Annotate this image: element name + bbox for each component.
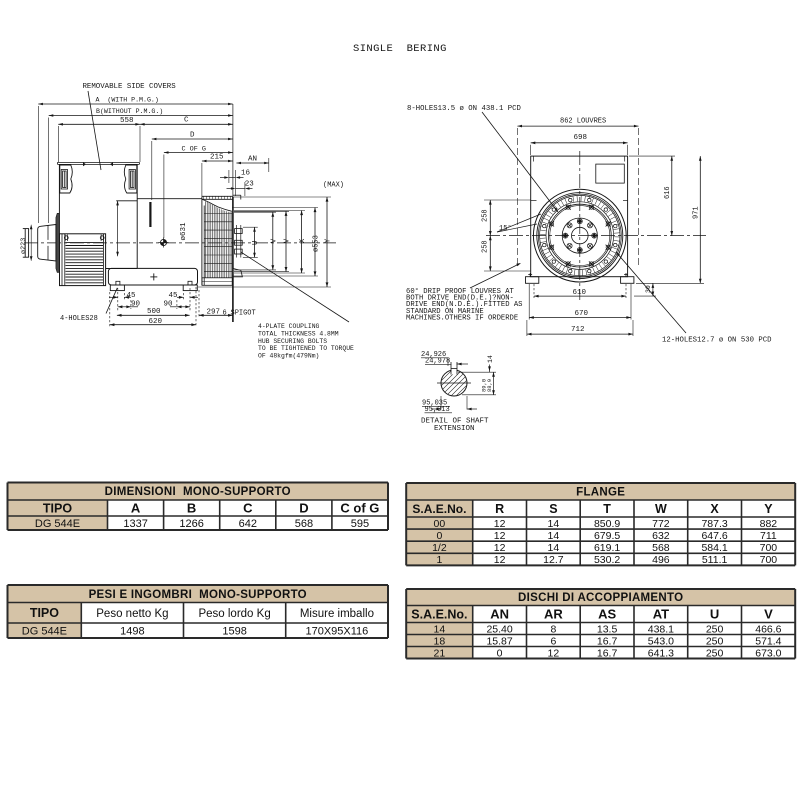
svg-text:U: U [710, 607, 719, 622]
svg-text:16.7: 16.7 [597, 647, 618, 659]
svg-text:21: 21 [434, 647, 446, 659]
svg-text:6: 6 [550, 635, 556, 647]
svg-text:AR: AR [544, 607, 563, 622]
svg-text:15.87: 15.87 [486, 635, 512, 647]
svg-text:250: 250 [706, 635, 724, 647]
svg-text:25.40: 25.40 [486, 623, 512, 635]
svg-text:438.1: 438.1 [648, 623, 674, 635]
svg-text:V: V [764, 607, 773, 622]
svg-text:12: 12 [548, 647, 560, 659]
svg-text:673.0: 673.0 [755, 647, 781, 659]
svg-text:0: 0 [497, 647, 503, 659]
svg-text:AS: AS [598, 607, 616, 622]
svg-text:543.0: 543.0 [648, 635, 674, 647]
svg-text:AN: AN [490, 607, 509, 622]
svg-text:18: 18 [434, 635, 446, 647]
svg-text:641.3: 641.3 [648, 647, 674, 659]
svg-text:14: 14 [434, 623, 446, 635]
svg-text:250: 250 [706, 623, 724, 635]
svg-text:DISCHI DI ACCOPPIAMENTO: DISCHI DI ACCOPPIAMENTO [518, 592, 683, 604]
svg-text:466.6: 466.6 [755, 623, 781, 635]
svg-text:571.4: 571.4 [755, 635, 781, 647]
svg-text:16.7: 16.7 [597, 635, 618, 647]
svg-text:13.5: 13.5 [597, 623, 618, 635]
svg-text:AT: AT [653, 607, 669, 622]
svg-text:8: 8 [550, 623, 556, 635]
svg-text:S.A.E.No.: S.A.E.No. [411, 608, 467, 622]
svg-text:250: 250 [706, 647, 724, 659]
